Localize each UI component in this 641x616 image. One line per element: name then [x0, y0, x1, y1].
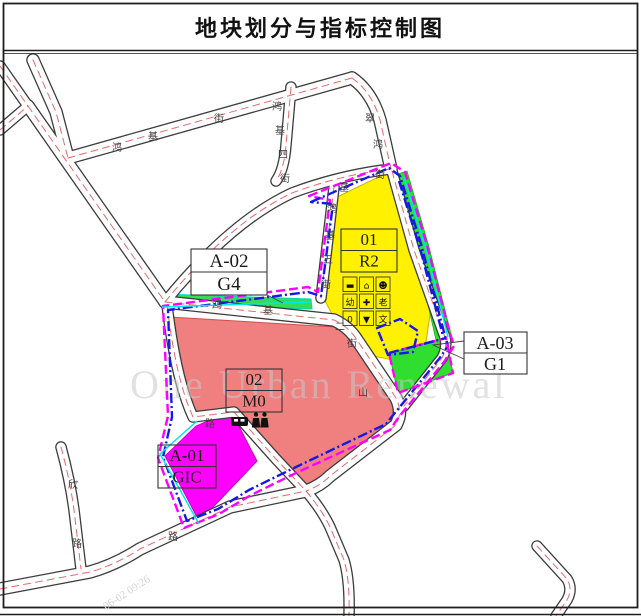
street-name-char: 鸿: [112, 141, 122, 154]
street-name-char: 四: [278, 150, 288, 161]
street-name-char: 基: [263, 304, 273, 317]
street-name-char: 街: [347, 337, 357, 350]
facility-icons-r2: ▬ ⌂ ☻ 幼 ✚ 老 0 ▼ 文: [343, 277, 390, 326]
street-name-char: 鸿: [373, 138, 383, 151]
street-name-char: 街: [280, 172, 290, 185]
plot-number: 01: [361, 230, 378, 249]
facility-icon: ▼: [363, 316, 370, 326]
street-name-char: 鸿: [212, 298, 222, 311]
street-name-char: 翠: [365, 113, 375, 125]
elderly-care-icon: 老: [378, 297, 387, 309]
plot-number: A-03: [477, 333, 514, 353]
plot-use-code: R2: [359, 252, 379, 271]
street-name-char: 街: [321, 278, 331, 291]
timestamp-text: 06-02 09:26: [101, 573, 153, 612]
street-name-char: 山: [358, 387, 368, 399]
home-icon: ⌂: [364, 282, 370, 292]
plot-number: 02: [246, 370, 263, 389]
street-name-char: 鸿: [272, 100, 282, 113]
plot-number: A-01: [170, 446, 205, 465]
culture-icon: 文: [378, 314, 387, 326]
timestamp-watermark: 06-02 09:26: [101, 573, 153, 612]
map-title: 地块划分与指标控制图: [195, 16, 445, 42]
street-name-char: 鸿: [327, 202, 337, 215]
facility-icon: 0: [347, 316, 353, 326]
bus-station-icon: [231, 417, 248, 426]
plot-control-map: One Urban Renewal 鸿 基 街 鸿 基 四 街 翠 鸿 基 街 …: [0, 0, 641, 616]
street-name-char: 基: [275, 124, 285, 137]
kindergarten-icon: 幼: [345, 297, 354, 309]
plot-use-code: G4: [217, 274, 241, 295]
facility-icon: ▬: [346, 282, 355, 292]
plot-number: A-02: [209, 251, 248, 272]
street-name-char: 欣: [68, 478, 78, 491]
street-name-char: 基: [325, 229, 335, 242]
person-icon: ☻: [378, 281, 387, 292]
medical-cross-icon: ✚: [363, 299, 371, 309]
street-name-char: 基: [339, 181, 349, 194]
plot-use-code: G1: [484, 354, 506, 374]
street-name-char: 路: [72, 537, 82, 550]
street-name-char: 五: [323, 255, 333, 266]
street-name-char: 路: [205, 417, 215, 430]
plan-sheet: One Urban Renewal 鸿 基 街 鸿 基 四 街 翠 鸿 基 街 …: [0, 0, 641, 616]
street-name-char: 路: [168, 530, 178, 543]
brand-watermark: One Urban Renewal: [130, 362, 508, 407]
street-name-char: 二: [335, 322, 345, 333]
plot-use-code: GIC: [172, 468, 201, 487]
street-name-char: 街: [214, 112, 224, 125]
plot-label-a02: A-02 G4: [191, 249, 283, 303]
sheet-frame: [0, 4, 641, 615]
plot-use-code: M0: [242, 392, 266, 411]
street-name-char: 街: [375, 168, 385, 181]
street-name-char: 基: [148, 130, 158, 143]
